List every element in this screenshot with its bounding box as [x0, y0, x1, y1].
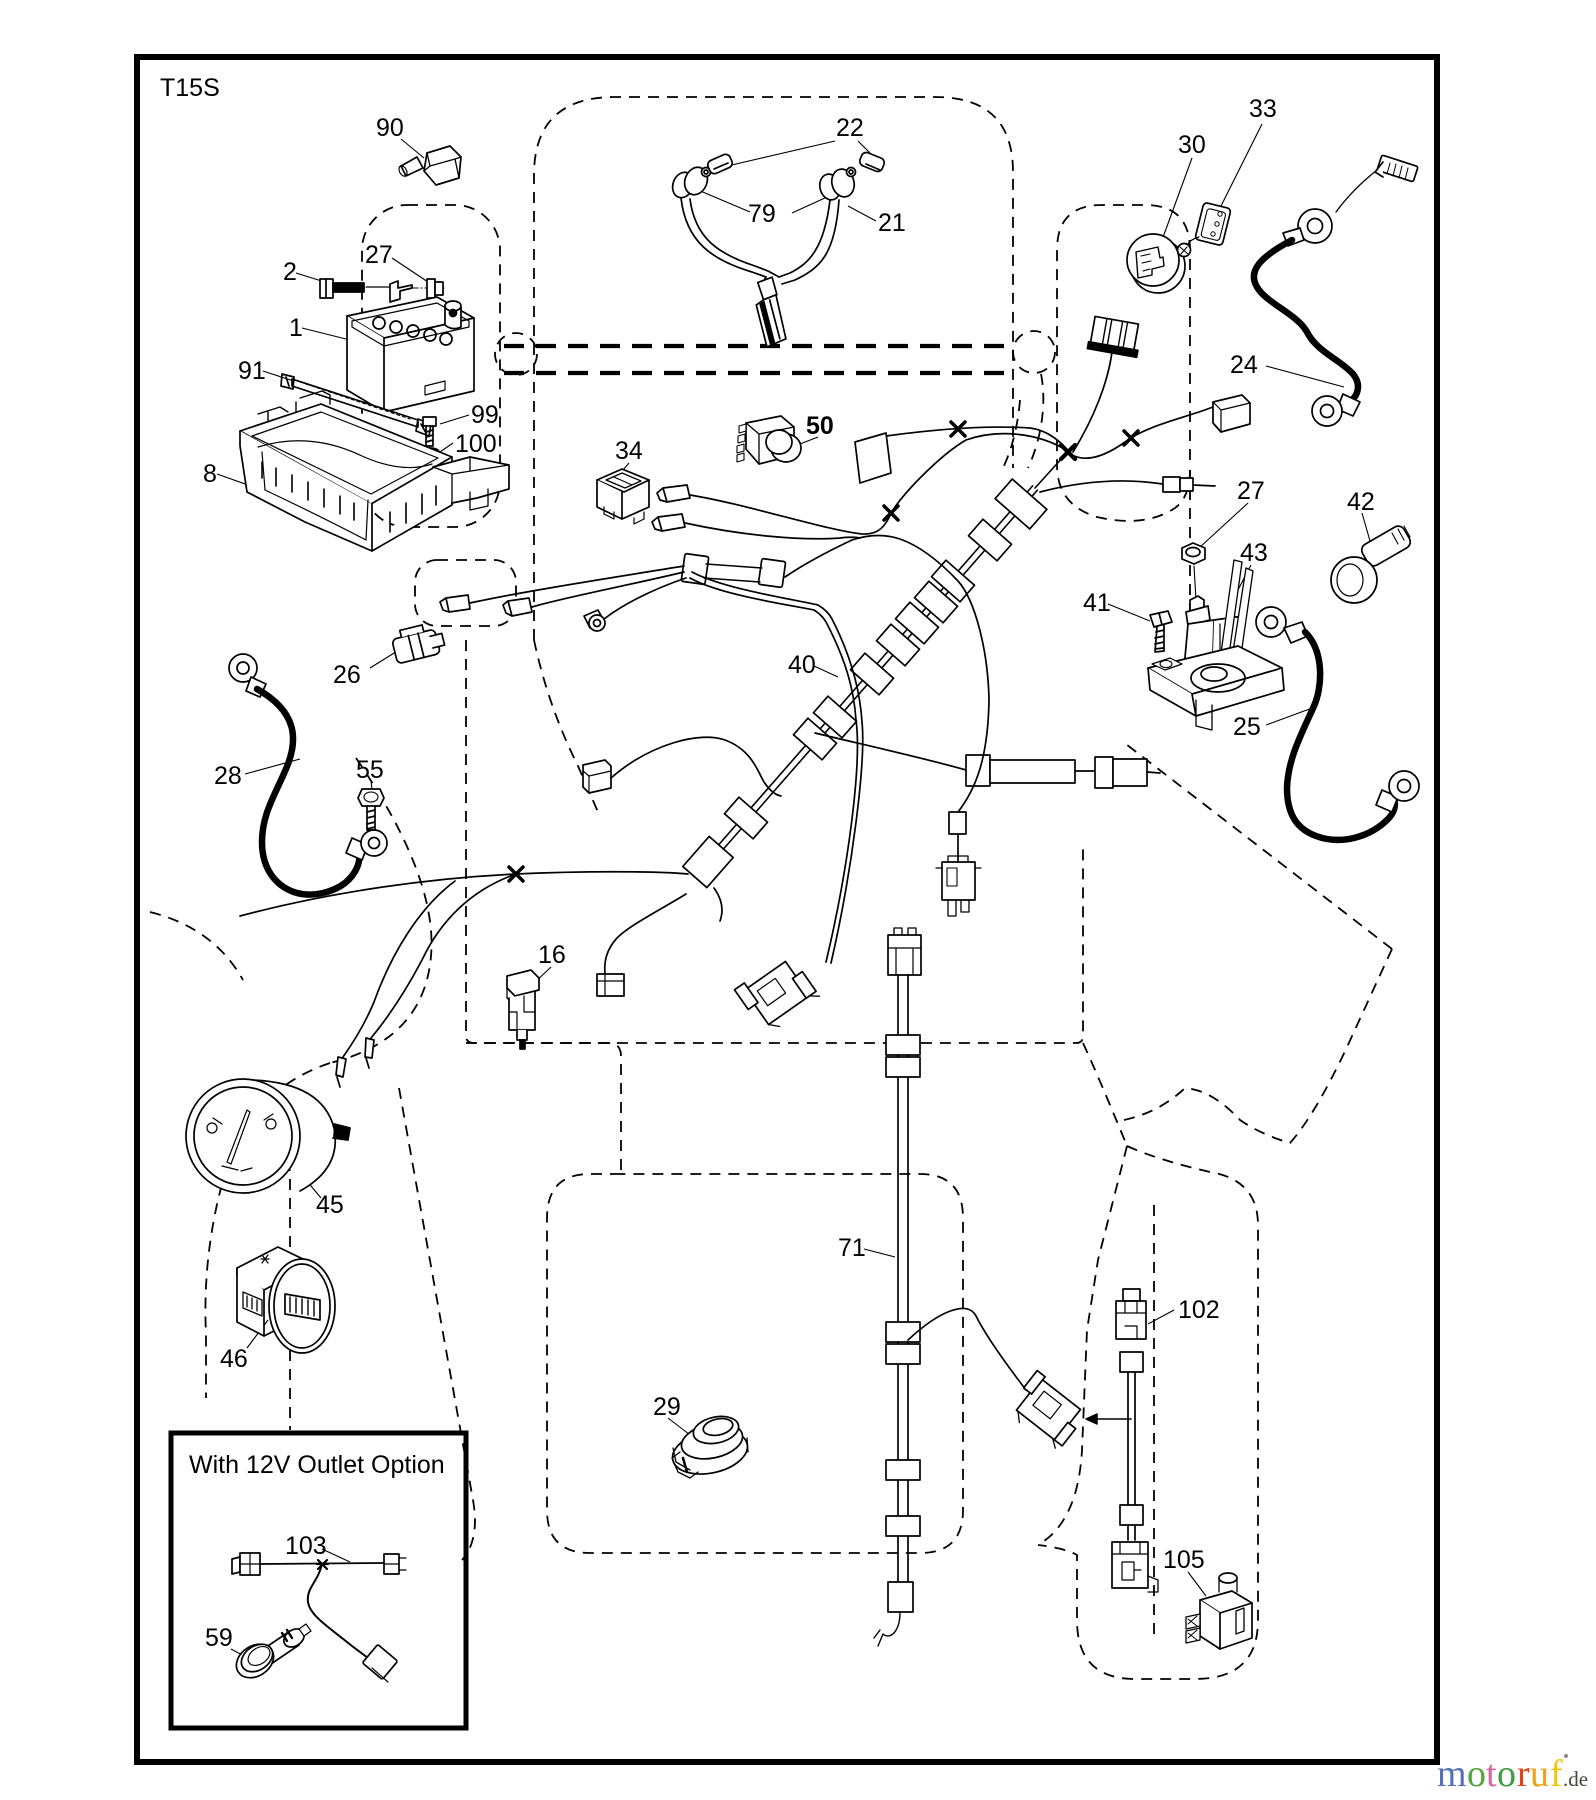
svg-text:f: f	[1550, 1753, 1563, 1795]
svg-text:u: u	[1530, 1753, 1549, 1795]
svg-text:42: 42	[1347, 488, 1375, 516]
svg-text:25: 25	[1233, 713, 1261, 741]
svg-text:8: 8	[203, 460, 217, 488]
svg-text:71: 71	[838, 1234, 866, 1262]
svg-text:41: 41	[1083, 589, 1111, 617]
svg-text:59: 59	[205, 1624, 233, 1652]
svg-text:33: 33	[1249, 95, 1277, 123]
svg-text:.de: .de	[1563, 1767, 1588, 1791]
svg-text:40: 40	[788, 651, 816, 679]
svg-text:100: 100	[455, 430, 497, 458]
svg-text:o: o	[1497, 1753, 1516, 1795]
svg-text:T15S: T15S	[160, 74, 220, 102]
svg-text:21: 21	[878, 209, 906, 237]
svg-text:105: 105	[1163, 1546, 1205, 1574]
svg-text:79: 79	[748, 200, 776, 228]
svg-text:46: 46	[220, 1345, 248, 1373]
svg-text:m: m	[1437, 1753, 1467, 1795]
svg-text:1: 1	[289, 314, 303, 342]
svg-text:30: 30	[1178, 131, 1206, 159]
svg-text:99: 99	[471, 401, 499, 429]
svg-text:2: 2	[283, 258, 297, 286]
svg-text:43: 43	[1240, 539, 1268, 567]
svg-text:o: o	[1467, 1753, 1486, 1795]
svg-text:16: 16	[538, 941, 566, 969]
svg-text:22: 22	[836, 114, 864, 142]
svg-text:27: 27	[365, 241, 393, 269]
svg-text:50: 50	[806, 412, 834, 440]
svg-text:26: 26	[333, 661, 361, 689]
svg-text:24: 24	[1230, 351, 1258, 379]
svg-text:r: r	[1517, 1753, 1530, 1795]
svg-text:27: 27	[1237, 477, 1265, 505]
svg-text:90: 90	[376, 114, 404, 142]
svg-text:103: 103	[285, 1532, 327, 1560]
svg-text:55: 55	[356, 756, 384, 784]
svg-text:t: t	[1486, 1753, 1497, 1795]
svg-text:29: 29	[653, 1393, 681, 1421]
svg-text:45: 45	[316, 1191, 344, 1219]
svg-text:34: 34	[615, 437, 643, 465]
svg-text:28: 28	[214, 762, 242, 790]
svg-text:91: 91	[238, 357, 266, 385]
svg-text:102: 102	[1178, 1296, 1220, 1324]
svg-text:With 12V Outlet Option: With 12V Outlet Option	[189, 1451, 445, 1479]
